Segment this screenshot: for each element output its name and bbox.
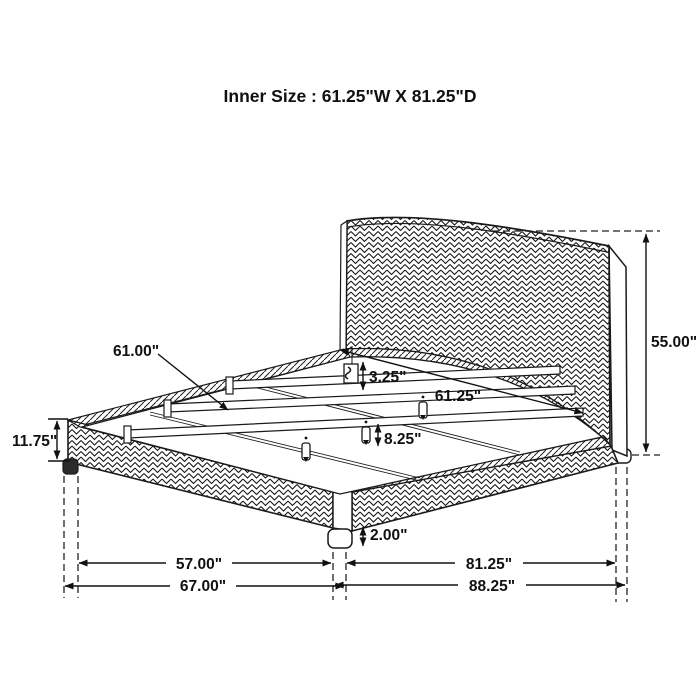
dim-label-leg-span-width: 57.00" [176,556,222,573]
dim-label-headboard-height: 55.00" [651,334,697,351]
dim-label-inner-depth: 81.25" [466,556,512,573]
dim-label-overall-width: 67.00" [180,578,226,595]
bed-dimension-diagram: Inner Size : 61.25"W X 81.25"D 61.00" 3.… [0,0,700,700]
slat-bracket [226,377,233,394]
dim-label-bracket-height: 3.25" [369,369,407,386]
slat-bracket [124,426,131,443]
dim-label-foot-leg-height: 2.00" [370,527,408,544]
diagram-title: Inner Size : 61.25"W X 81.25"D [224,86,477,106]
front-corner-leg [328,529,352,548]
slat-bracket [164,400,171,417]
headboard-left-edge [340,221,347,352]
dim-label-slat-length: 61.00" [113,343,159,360]
dim-label-rail-height: 11.75" [12,433,57,450]
dim-label-center-leg-height: 8.25" [384,431,422,448]
dim-label-inner-width: 61.25" [435,388,481,405]
dim-label-overall-depth: 88.25" [469,578,515,595]
bed-dimension-diagram-page: Inner Size : 61.25"W X 81.25"D 61.00" 3.… [0,0,700,700]
headboard-side-panel [609,246,627,456]
